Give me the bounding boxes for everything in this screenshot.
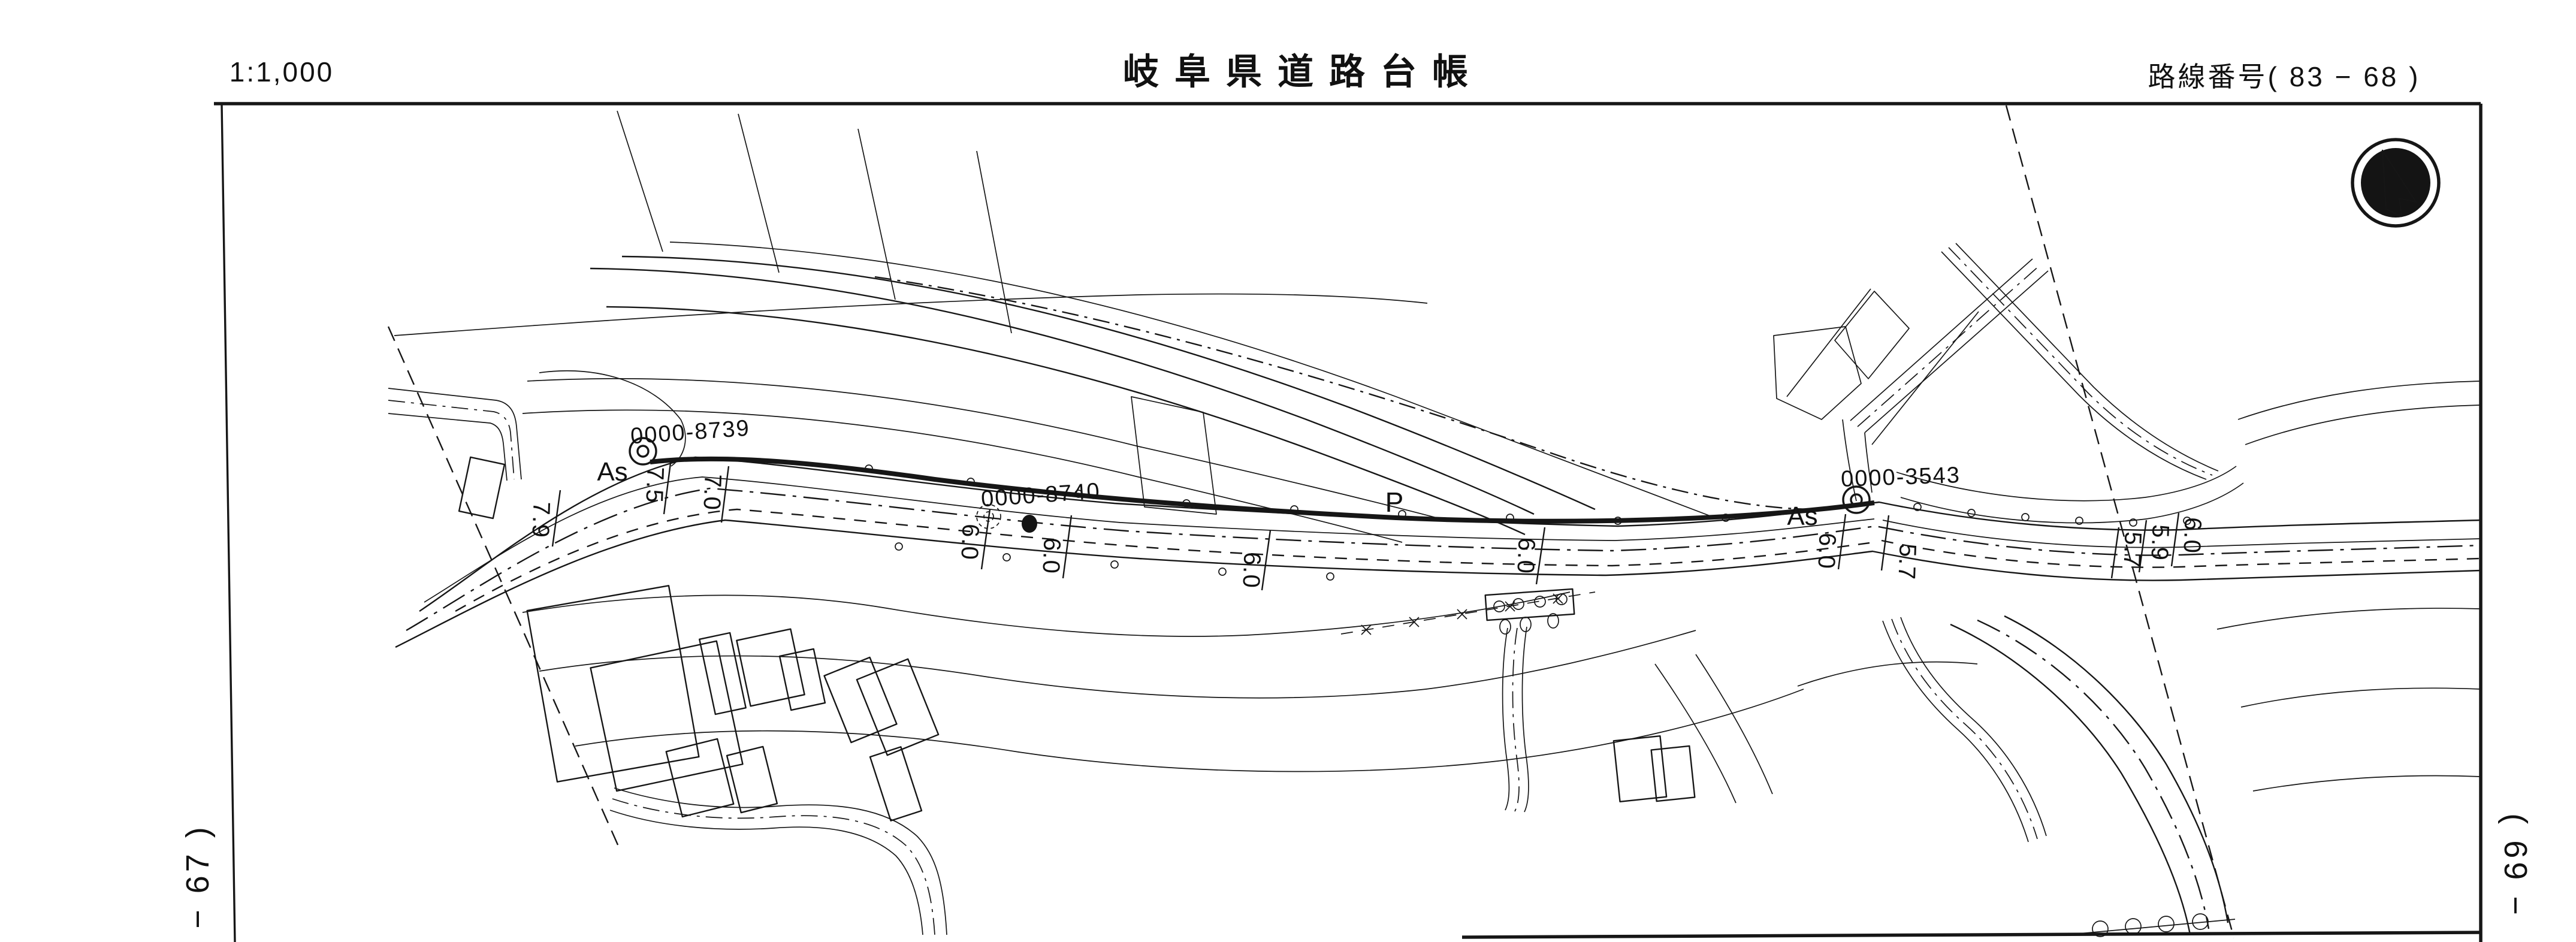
lane-centerline xyxy=(1949,247,2212,475)
station-label: 0000-3543 xyxy=(1840,463,1961,493)
map-drawing xyxy=(0,0,2576,942)
building xyxy=(459,457,505,518)
building xyxy=(591,641,743,791)
lane-edge xyxy=(610,810,923,935)
stream-edge xyxy=(1901,617,2046,836)
lane-edge xyxy=(1865,271,2048,433)
buildings xyxy=(459,457,1695,821)
lane-centerline xyxy=(612,799,935,935)
frame-bottom-border xyxy=(1462,932,2481,937)
building xyxy=(1614,736,1666,802)
contour-line xyxy=(2241,688,2481,707)
road-width-label: 5.7 xyxy=(1892,543,1920,581)
stone-bump xyxy=(1003,554,1010,561)
stone-bump xyxy=(1327,573,1334,580)
survey-point-dot xyxy=(1022,515,1037,533)
building xyxy=(527,585,699,781)
stream-edge xyxy=(1883,621,2028,842)
building xyxy=(699,633,745,714)
admin-boundary-line xyxy=(875,277,1849,509)
stream-centerline xyxy=(1513,628,1520,811)
road-width-label: 7.9 xyxy=(526,501,554,539)
slope-edge xyxy=(2245,405,2481,445)
lane-edge xyxy=(614,788,947,935)
slope-edge xyxy=(539,371,685,466)
stone-bump xyxy=(2022,514,2029,521)
slope-top-line xyxy=(622,256,1595,509)
building xyxy=(736,629,804,707)
branch-road-edge xyxy=(1950,624,2190,935)
plot-line xyxy=(1787,289,1871,397)
frame-left-border xyxy=(222,104,235,942)
slope-hatch-band xyxy=(1655,654,1772,803)
lane-centerline xyxy=(1858,265,2040,427)
road-width-label: 6.0 xyxy=(1237,551,1265,589)
plot-line xyxy=(977,151,1011,333)
building xyxy=(870,747,922,820)
plot-polygon xyxy=(1131,397,1216,514)
lane-edge xyxy=(388,413,507,481)
contour-line xyxy=(523,592,1570,636)
road-width-label: 5.9 xyxy=(2145,524,2173,561)
road-width-label: 7.5 xyxy=(640,466,668,504)
stone-bump xyxy=(1111,561,1118,568)
plot-line xyxy=(1872,312,1979,445)
surface-type-label: As xyxy=(597,457,627,487)
contour-line xyxy=(2253,776,2481,791)
contour-line xyxy=(1798,662,1977,686)
branch-road-centerline xyxy=(1977,620,2209,929)
stream-edge xyxy=(1503,628,1509,810)
culvert-opening xyxy=(1520,617,1531,632)
road-register-sheet: 1:1,000 岐阜県道路台帳 路線番号( 83 − 68 ) − 67 ) (… xyxy=(0,0,2576,942)
slope-edge xyxy=(590,268,1534,514)
road-width-label: 5.7 xyxy=(2118,531,2146,569)
road-width-label: 7.0 xyxy=(697,473,726,511)
slope-hatch-terrace xyxy=(539,371,685,466)
building xyxy=(727,747,777,813)
width-tick xyxy=(2112,527,2119,578)
contour-line xyxy=(394,294,1427,336)
stream-edge xyxy=(1523,627,1529,812)
slope-edge xyxy=(2238,381,2481,419)
north-arrow-disc xyxy=(2361,148,2430,218)
contour-line xyxy=(2217,608,2481,629)
road-width-label: 6.0 xyxy=(1812,532,1840,570)
contour-line xyxy=(575,689,1804,772)
plot-polygon xyxy=(1774,327,1861,419)
lane-edge xyxy=(1941,252,2206,479)
north-arrow-icon xyxy=(2352,140,2439,226)
lane-edge xyxy=(1956,243,2218,471)
stone-bump xyxy=(1968,509,1975,517)
plot-polygon xyxy=(1835,291,1909,379)
stone-bump xyxy=(2125,919,2141,934)
stream-centerline xyxy=(1892,619,2037,839)
stone-bump xyxy=(1219,568,1226,575)
plot-line xyxy=(738,114,779,273)
width-tick xyxy=(1882,515,1889,570)
road-width-label: 6.0 xyxy=(955,523,983,561)
stone-bump xyxy=(895,543,902,550)
building xyxy=(825,657,897,742)
stone-bump xyxy=(2158,916,2174,932)
surface-type-label: As xyxy=(1787,502,1817,532)
plot-line xyxy=(617,111,663,252)
building xyxy=(1651,746,1695,801)
culvert-opening xyxy=(1500,620,1511,634)
road-width-label: 6.0 xyxy=(2178,517,2206,554)
plot-line xyxy=(858,129,895,300)
slope-edge xyxy=(1655,664,1736,803)
lane-edge xyxy=(1850,259,2033,421)
road-width-label: 6.0 xyxy=(1037,537,1065,575)
fence-x-mark xyxy=(1457,609,1467,619)
parking-label: P xyxy=(1385,486,1404,518)
branch-road-edge xyxy=(2004,616,2228,923)
road-width-label: 6.0 xyxy=(1511,537,1539,575)
building xyxy=(857,659,938,756)
slope-edge xyxy=(1696,654,1772,794)
